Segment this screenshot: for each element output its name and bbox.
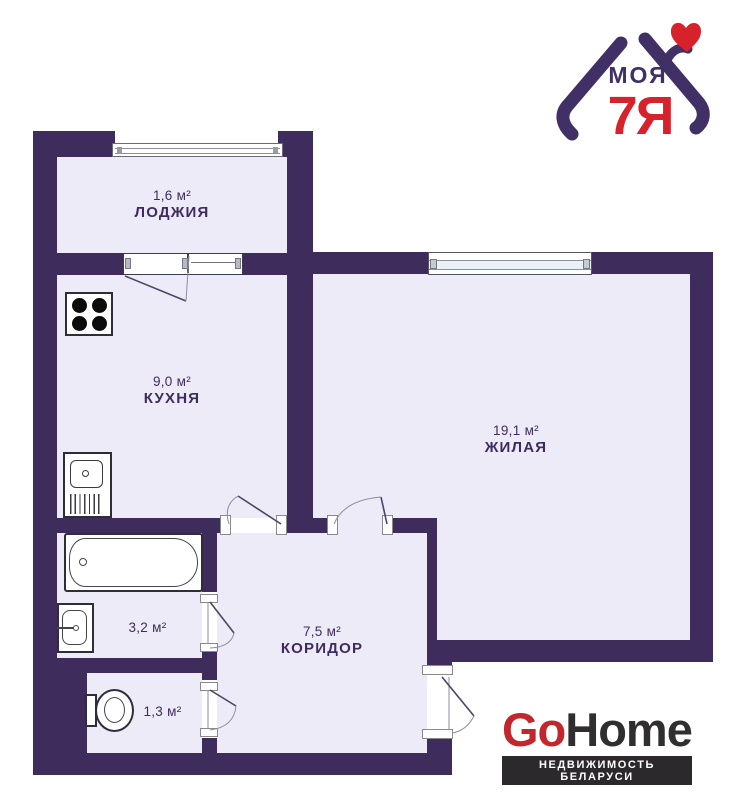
sink-drain [82,470,89,477]
heart-icon [671,23,701,52]
window-glazing [429,260,591,270]
bathtub-inner [69,538,198,587]
wall-segment [57,673,87,753]
wall-segment [287,275,313,533]
door-jamb [200,643,218,652]
sink-drainboard [70,494,103,514]
wall-segment [33,518,225,533]
gohome-home: Home [565,703,692,756]
label-corridor: 7,5 м² КОРИДОР [252,624,392,657]
door-jamb [220,515,231,535]
kitchen-name: КУХНЯ [107,390,237,407]
living-area: 19,1 м² [446,423,586,438]
label-kitchen: 9,0 м² КУХНЯ [107,374,237,407]
wall-segment [33,753,452,775]
window-cap [182,258,188,269]
label-bathroom: 3,2 м² [100,620,195,635]
bathtub-drain [79,558,87,566]
label-living: 19,1 м² ЖИЛАЯ [446,423,586,456]
window-cap [583,259,590,269]
label-loggia: 1,6 м² ЛОДЖИЯ [107,188,237,221]
window-glazing [115,148,280,154]
kitchen-sink-icon [63,452,112,518]
moya7ya-logo-word: МОЯ [595,62,681,89]
wall-segment [202,533,217,592]
bathtub-icon [64,533,203,592]
wall-segment [282,518,333,533]
wall-segment [202,738,217,753]
window-cap [273,147,278,153]
label-wc: 1,3 м² [125,704,200,719]
corridor-area: 7,5 м² [252,624,392,639]
loggia-window [112,143,283,157]
loggia-area: 1,6 м² [107,188,237,203]
wall-segment [33,131,115,157]
washbasin-icon [57,603,94,653]
washbasin-drain [73,625,79,631]
window-cap [235,258,241,269]
stove-burner [92,316,107,331]
stove-burner [72,316,87,331]
gohome-tagline: НЕДВИЖИМОСТЬ БЕЛАРУСИ [502,756,692,785]
door-jamb [422,665,453,675]
door-jamb [327,515,338,535]
wall-segment [427,640,713,662]
wall-segment [33,658,217,673]
gohome-logo: GoHome НЕДВИЖИМОСТЬ БЕЛАРУСИ [502,706,692,785]
gohome-go: Go [502,703,565,756]
wall-segment [313,252,428,274]
wall-segment [243,253,313,275]
wall-segment [57,253,123,275]
door-jamb [200,728,218,737]
kitchen-area: 9,0 м² [107,374,237,389]
door-jamb [200,594,218,603]
door-jamb [382,515,393,535]
door-jamb [200,682,218,691]
window-glazing [191,262,239,263]
living-window [428,252,592,275]
gohome-wordmark: GoHome [502,706,692,754]
stove-burner [72,298,87,313]
floor-plan-canvas: 1,6 м² ЛОДЖИЯ 9,0 м² КУХНЯ 19,1 м² ЖИЛАЯ… [0,0,737,800]
wall-segment [33,131,57,775]
stove-burner [92,298,107,313]
corridor-name: КОРИДОР [252,640,392,657]
bathroom-area: 3,2 м² [100,620,195,635]
window-cap [125,258,131,269]
wall-segment [690,252,713,662]
window-cap [430,259,437,269]
wc-area: 1,3 м² [125,704,200,719]
window-cap [117,147,122,153]
stove-icon [65,292,113,336]
moya7ya-logo-family: 7Я [588,86,692,146]
balcony-door-window [123,253,243,275]
logo-hand [667,48,688,60]
door-jamb [276,515,287,535]
loggia-name: ЛОДЖИЯ [107,204,237,221]
wall-segment [427,533,437,640]
washbasin-tap [57,627,74,629]
toilet-bowl-inner [104,697,125,723]
door-jamb [422,729,453,739]
living-name: ЖИЛАЯ [446,439,586,456]
wall-segment [388,518,437,533]
